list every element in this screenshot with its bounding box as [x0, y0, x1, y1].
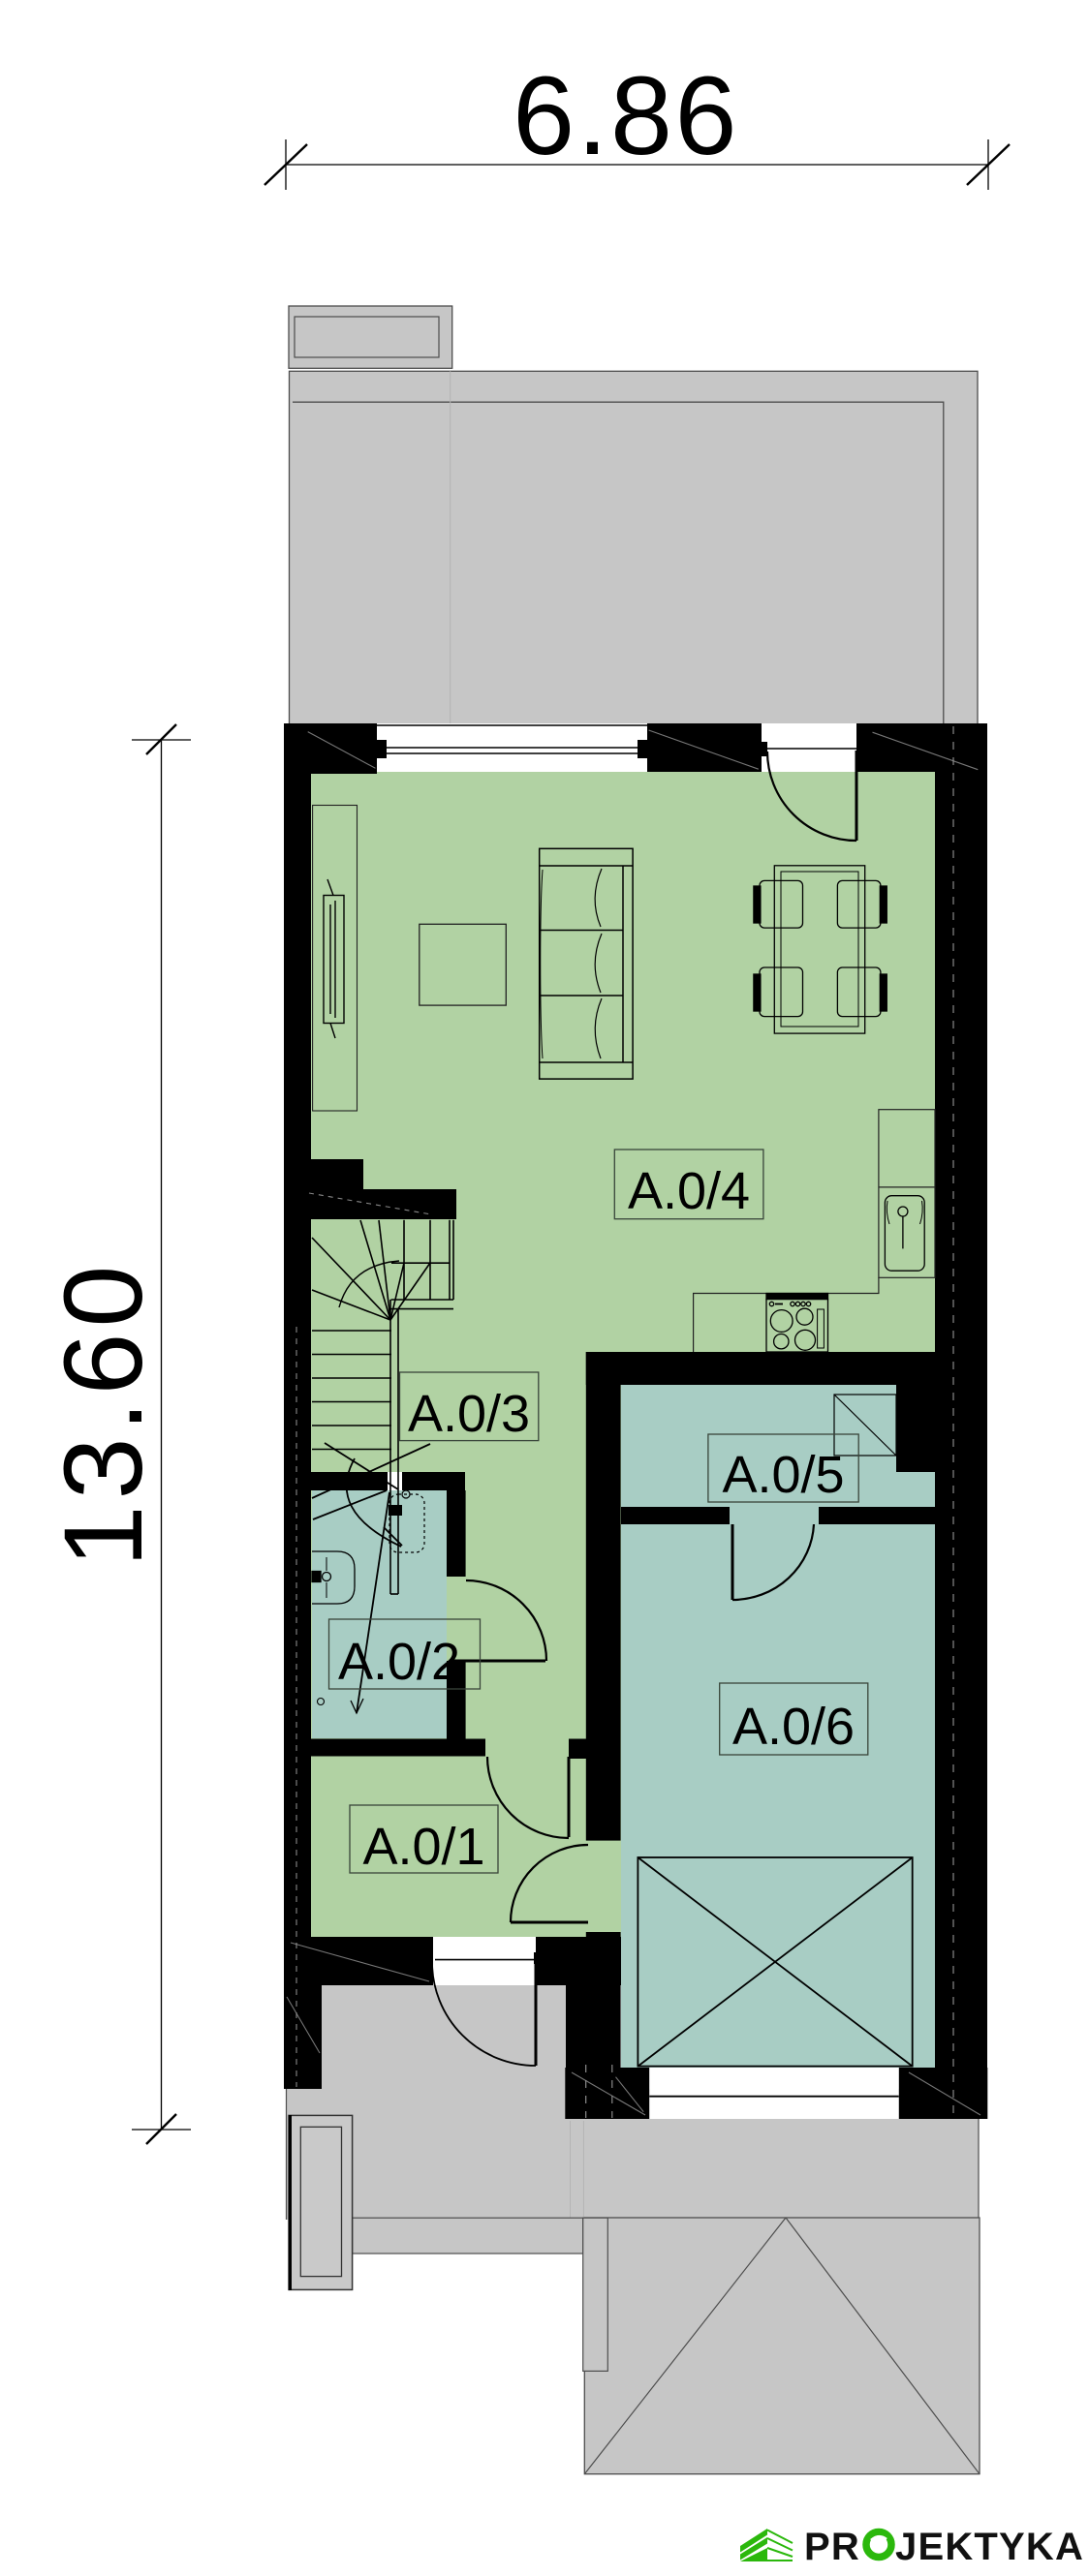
svg-text:6.86: 6.86	[513, 54, 739, 178]
svg-text:A.0/2: A.0/2	[338, 1633, 460, 1691]
svg-text:A.0/5: A.0/5	[722, 1446, 844, 1504]
svg-text:A.0/6: A.0/6	[732, 1698, 855, 1756]
svg-text:A.0/4: A.0/4	[628, 1162, 750, 1220]
svg-text:PR: PR	[804, 2526, 860, 2568]
svg-text:JEKTYKA: JEKTYKA	[895, 2526, 1084, 2568]
svg-text:A.0/1: A.0/1	[362, 1818, 484, 1876]
svg-text:A.0/3: A.0/3	[408, 1385, 530, 1443]
svg-text:13.60: 13.60	[42, 1260, 166, 1568]
